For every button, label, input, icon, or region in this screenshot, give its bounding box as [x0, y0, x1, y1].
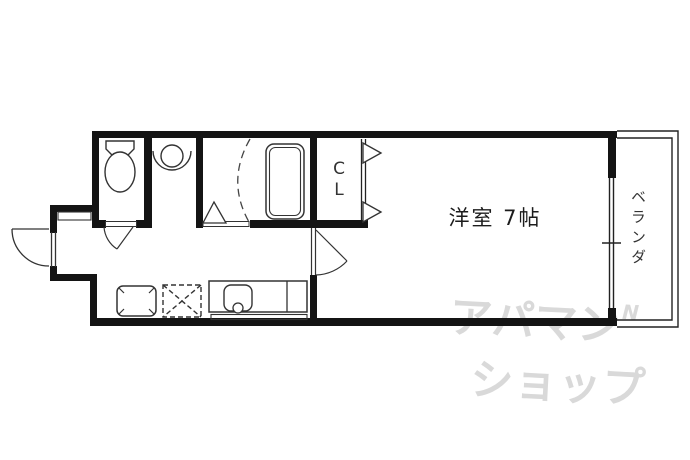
- washing-machine-corner-1: [119, 288, 124, 293]
- sliding-window-icon: [602, 178, 621, 308]
- toilet-door-arc: [104, 227, 117, 249]
- veranda-label: ベランダ: [628, 189, 649, 299]
- wall-toilet-bottom-left: [92, 220, 106, 228]
- washing-machine-pan: [117, 286, 156, 316]
- closet-folding-door-icon: [362, 139, 382, 222]
- closet-door-triangle-bottom: [363, 202, 381, 222]
- wall-right-upper: [608, 131, 616, 178]
- wall-right-lower: [608, 308, 616, 326]
- toilet-bowl: [105, 152, 135, 192]
- wall-bottom: [90, 318, 617, 326]
- wall-entry-step-bottom: [50, 274, 97, 281]
- wall-top: [92, 131, 617, 138]
- bathtub-inner-rim: [270, 148, 301, 216]
- wall-toilet-bottom-right: [136, 220, 152, 228]
- toilet-door-icon: [104, 227, 133, 249]
- entrance-door-icon: [12, 229, 56, 267]
- bathroom-area: [203, 139, 304, 227]
- kitchen-area: [117, 281, 307, 320]
- bath-folding-door-triangle: [203, 202, 226, 223]
- kitchen-sink-icon: [209, 281, 307, 320]
- entrance-step: [58, 212, 91, 220]
- closet-door-triangle-top: [363, 143, 381, 163]
- toilet-door-threshold: [106, 222, 137, 227]
- floorplan: アパマンN ショップ: [0, 0, 690, 460]
- wall-toilet-left: [92, 131, 99, 228]
- bathtub-icon: [266, 144, 304, 219]
- wall-kitchen-left: [90, 274, 97, 325]
- washing-machine-corner-3: [119, 309, 124, 314]
- kitchen-faucet: [233, 303, 243, 313]
- room-door-icon: [312, 228, 348, 275]
- wall-bath-right: [310, 131, 317, 220]
- wall-entry-left-upper: [50, 205, 57, 233]
- washing-machine-corner-2: [149, 288, 154, 293]
- room-door-arc: [316, 261, 347, 275]
- entrance-door-arc: [12, 229, 49, 266]
- bath-folding-door-curve: [238, 139, 250, 222]
- toilet-icon: [105, 141, 135, 192]
- washbasin-icon: [153, 145, 191, 170]
- wall-bath-left: [196, 131, 203, 228]
- refrigerator-icon: [163, 285, 201, 317]
- wall-below-room-door: [310, 275, 317, 320]
- closet-label-char-c: C: [329, 159, 349, 180]
- closet-label: C L: [329, 159, 349, 201]
- bathtub-outer-rim: [266, 144, 304, 219]
- wall-bath-cl-bottom: [250, 220, 368, 228]
- closet-label-char-l: L: [329, 180, 349, 201]
- room-door-leaf: [316, 230, 347, 261]
- wall-entry-alcove-top: [50, 205, 99, 212]
- washing-machine-icon: [117, 286, 156, 316]
- wall-toilet-right: [144, 131, 152, 228]
- washing-machine-corner-4: [149, 309, 154, 314]
- toilet-area: [104, 141, 137, 249]
- toilet-door-leaf: [117, 227, 133, 249]
- main-room-label: 洋室 7帖: [380, 202, 610, 232]
- washbasin-bowl: [161, 145, 183, 167]
